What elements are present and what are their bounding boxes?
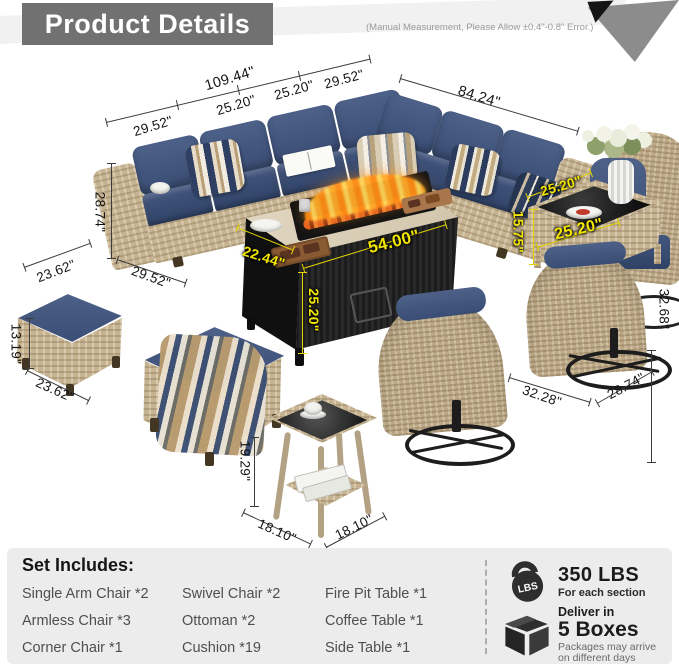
flower-bouquet xyxy=(582,130,594,142)
dim-side-table-height: 19.29" xyxy=(238,441,253,481)
weight-capacity-value: 350 LBS xyxy=(558,564,639,587)
product-details-page: Product Details (Manual Measurement, Ple… xyxy=(0,0,679,668)
delivery-caption-line2: on different days xyxy=(558,652,635,664)
list-item: Ottoman *2 xyxy=(182,608,325,635)
delivery-boxes-value: 5 Boxes xyxy=(558,618,639,642)
dimension-line-yellow xyxy=(533,209,534,265)
dim-side-table-width: 18.10" xyxy=(256,516,299,546)
list-item: Coffee Table *1 xyxy=(325,608,495,635)
dim-segment: 29.52" xyxy=(323,67,366,92)
striped-pillow xyxy=(444,142,502,197)
dim-sofa-height: 28.74" xyxy=(93,192,108,232)
coffee-table-leg xyxy=(654,244,661,264)
dimension-line-yellow xyxy=(302,272,303,354)
striped-throw-blanket xyxy=(155,333,269,456)
dim-right-section: 84.24" xyxy=(456,83,502,111)
vertical-dashed-divider xyxy=(485,560,487,654)
set-includes-title: Set Includes: xyxy=(22,555,134,576)
list-item: Single Arm Chair *2 xyxy=(22,581,182,608)
dim-ottoman-height: 13.19" xyxy=(9,324,24,364)
coffee-cup xyxy=(304,402,322,415)
dim-swivel-height: 32.68" xyxy=(657,289,672,329)
set-includes-column-3: Fire Pit Table *1 Coffee Table *1 Side T… xyxy=(325,581,495,662)
sofa-leg xyxy=(496,247,508,259)
dimension-line xyxy=(111,163,112,259)
ottoman-leg xyxy=(205,452,214,466)
list-item: Swivel Chair *2 xyxy=(182,581,325,608)
side-table-leg xyxy=(354,430,372,515)
page-title: Product Details xyxy=(45,9,251,40)
dim-segment: 25.20" xyxy=(214,92,257,118)
ottoman-leg xyxy=(112,356,120,368)
fruit xyxy=(576,209,590,215)
dimension-line xyxy=(651,350,652,463)
kettlebell-weight-icon: LBS xyxy=(499,550,552,608)
list-item: Fire Pit Table *1 xyxy=(325,581,495,608)
dim-overall-width: 109.44" xyxy=(203,64,257,94)
fire-pit-leg xyxy=(247,314,255,330)
dim-coffee-table-height: 15.75" xyxy=(511,211,526,253)
set-includes-column-2: Swivel Chair *2 Ottoman *2 Cushion *19 xyxy=(182,581,325,662)
flower-vase xyxy=(608,160,634,204)
set-includes-list: Single Arm Chair *2 Armless Chair *3 Cor… xyxy=(22,581,495,662)
page-title-box: Product Details xyxy=(22,3,273,45)
cup xyxy=(299,199,310,212)
set-includes-column-1: Single Arm Chair *2 Armless Chair *3 Cor… xyxy=(22,581,182,662)
list-item: Corner Chair *1 xyxy=(22,635,182,662)
striped-pillow xyxy=(184,138,246,199)
dim-side-table-depth: 18.10" xyxy=(333,511,376,542)
list-item: Side Table *1 xyxy=(325,635,495,662)
grilled-food xyxy=(303,242,321,254)
sofa-leg xyxy=(172,256,184,268)
cup-on-arm xyxy=(150,182,170,194)
grilled-food xyxy=(408,199,421,209)
shipping-box-icon xyxy=(504,614,550,658)
grilled-food xyxy=(425,193,440,204)
set-includes-panel: Set Includes: Single Arm Chair *2 Armles… xyxy=(7,548,672,664)
dim-segment: 29.52" xyxy=(131,113,174,139)
dim-firepit-height: 25.20" xyxy=(306,288,322,331)
delivery-lead-text: Deliver in xyxy=(558,605,614,619)
weight-capacity-caption: For each section xyxy=(558,587,645,599)
snack-plate xyxy=(250,219,282,232)
side-table-leg xyxy=(273,432,291,520)
ottoman-leg xyxy=(150,418,159,432)
furniture-scene: 109.44" 29.52" 25.20" 25.20" 29.52" 84.2… xyxy=(0,0,679,552)
list-item: Armless Chair *3 xyxy=(22,608,182,635)
dimension-line xyxy=(29,318,30,369)
list-item: Cushion *19 xyxy=(182,635,325,662)
dimension-line xyxy=(254,437,255,507)
